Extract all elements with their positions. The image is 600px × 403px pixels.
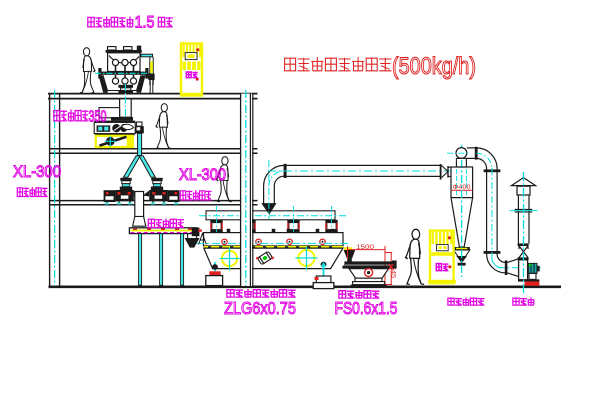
svg-text:350: 350 bbox=[89, 109, 107, 126]
svg-text:1.5: 1.5 bbox=[135, 13, 155, 32]
svg-text:XL-300: XL-300 bbox=[13, 162, 61, 181]
svg-text:ZLG6x0.75: ZLG6x0.75 bbox=[224, 298, 296, 318]
svg-text:XL-300: XL-300 bbox=[179, 165, 226, 184]
svg-text:(500kg/h): (500kg/h) bbox=[392, 53, 476, 80]
svg-text:FS0.6x1.5: FS0.6x1.5 bbox=[335, 298, 398, 318]
svg-text:1500: 1500 bbox=[356, 244, 374, 251]
